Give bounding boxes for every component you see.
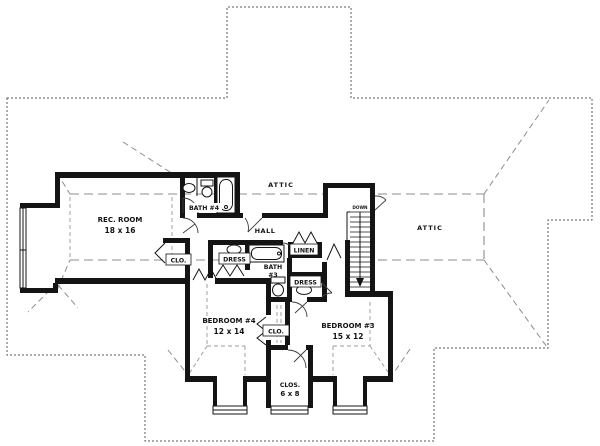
bath4-sink — [183, 178, 197, 196]
bedroom3-label: BEDROOM #3 — [321, 322, 374, 330]
stair-arrow-head — [356, 278, 364, 287]
bath4-toilet — [201, 180, 213, 197]
dress-left-label: DRESS — [223, 257, 246, 264]
attic-right-label: ATTIC — [417, 224, 443, 232]
bedroom3-dims: 15 x 12 — [333, 332, 364, 341]
bedroom3-closet-door — [292, 302, 307, 317]
bedroom4-dims: 12 x 14 — [214, 327, 245, 336]
bath3-label-line2: #3 — [268, 272, 278, 279]
dormer-window-left — [213, 406, 247, 414]
bath3-label-line1: BATH — [264, 264, 282, 271]
floor-plan-svg: REC. ROOM 18 x 16 BATH #4 ATTIC ATTIC HA… — [0, 0, 600, 446]
rec-hall-door — [183, 218, 198, 233]
closet-bottom-door — [288, 350, 306, 368]
bedroom4-entry-door — [193, 269, 217, 280]
bedroom3-passage-door — [327, 244, 341, 260]
stair-attic-door — [375, 196, 386, 210]
dormer-window-right — [333, 406, 367, 414]
rec-closet-label: CLO. — [171, 258, 187, 265]
closet-between-label: CLO. — [268, 329, 284, 336]
linen-bifold-door — [293, 232, 317, 243]
closet-bottom-dims: 6 x 8 — [280, 390, 299, 398]
attic-upper-label: ATTIC — [268, 181, 294, 189]
bath4-label: BATH #4 — [189, 205, 220, 212]
bath3-tub — [249, 245, 284, 262]
dress-right-label: DRESS — [294, 280, 317, 287]
dress-left-bifold-door — [216, 265, 244, 276]
floor-plan: REC. ROOM 18 x 16 BATH #4 ATTIC ATTIC HA… — [0, 0, 600, 446]
linen-label: LINEN — [294, 248, 315, 255]
dormer-window-center — [271, 406, 308, 414]
rec-room-label: REC. ROOM — [98, 216, 143, 224]
bay-window — [20, 208, 26, 288]
stair-down-label: DOWN — [352, 205, 368, 210]
staircase — [347, 212, 370, 287]
rec-room-dims: 18 x 16 — [105, 226, 136, 235]
hall-label: HALL — [255, 227, 276, 235]
bath3-toilet — [271, 277, 285, 296]
closet-bottom-label: CLOS. — [280, 382, 300, 389]
bedroom4-label: BEDROOM #4 — [202, 317, 255, 325]
roof-outline — [7, 7, 592, 441]
